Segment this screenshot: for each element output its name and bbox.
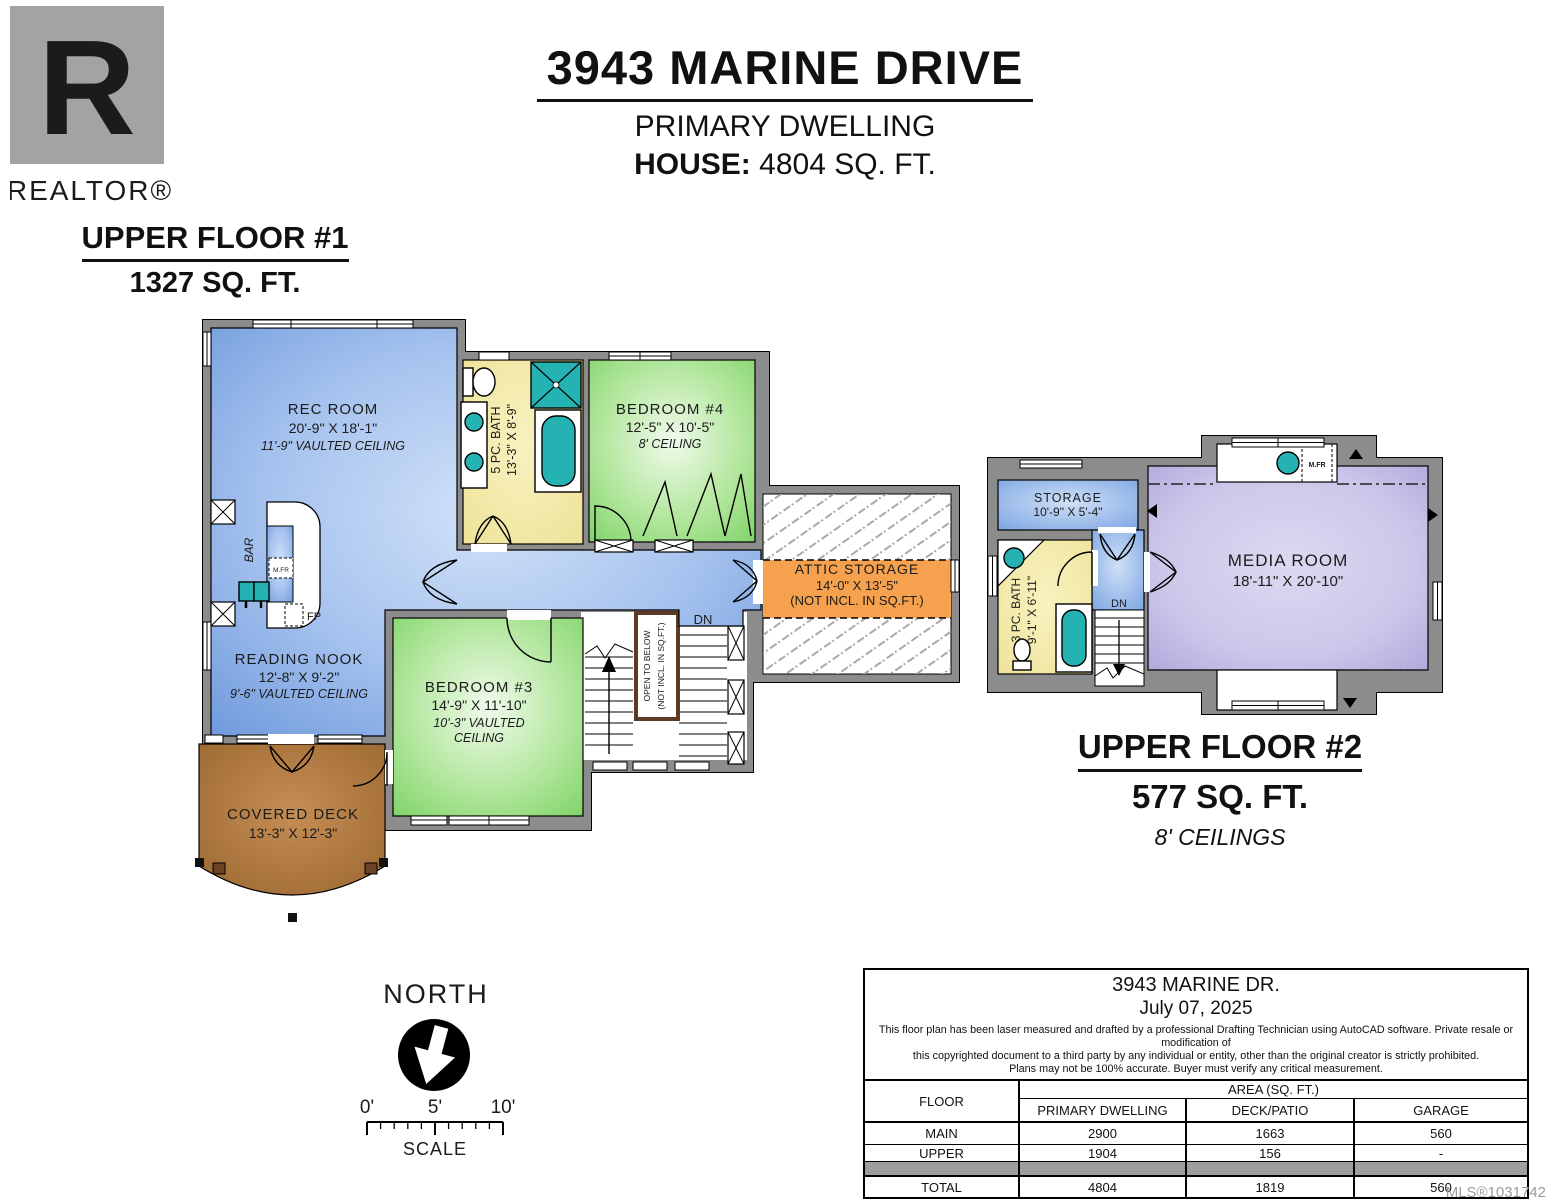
bedroom4-dims: 12'-5" X 10'-5" xyxy=(626,419,714,435)
bar-cabinet-icon xyxy=(254,582,269,601)
bedroom3-ceiling1: 10'-3" VAULTED xyxy=(433,716,524,730)
scale-label: SCALE xyxy=(403,1139,467,1159)
floor1-heading: UPPER FLOOR #1 1327 SQ. FT. xyxy=(40,220,390,300)
floorplan-upper1: OPEN TO BELOW (NOT INCL. IN SQ.FT.) xyxy=(195,310,965,930)
spacer-row xyxy=(865,1162,1020,1177)
floor2-title: UPPER FLOOR #2 xyxy=(1078,728,1362,772)
nook-dims: 12'-8" X 9'-2" xyxy=(259,669,340,685)
bedroom3-dims: 14'-9" X 11'-10" xyxy=(431,697,526,713)
area-table: 3943 MARINE DR. July 07, 2025 This floor… xyxy=(863,968,1529,1199)
col-header-garage: GARAGE xyxy=(1355,1099,1527,1123)
bedroom3-name: BEDROOM #3 xyxy=(425,679,533,696)
row-total-primary: 4804 xyxy=(1020,1177,1187,1197)
dn-label: DN xyxy=(694,612,713,627)
house-label: HOUSE: xyxy=(634,148,751,181)
row-total-deck: 1819 xyxy=(1187,1177,1355,1197)
bedroom3-ceiling2: CEILING xyxy=(454,731,504,745)
area-table-grid: FLOOR AREA (SQ. FT.) PRIMARY DWELLING DE… xyxy=(865,1081,1527,1197)
col-header-deck: DECK/PATIO xyxy=(1187,1099,1355,1123)
floor1-title: UPPER FLOOR #1 xyxy=(82,220,349,262)
scale-tick-0: 0' xyxy=(360,1097,374,1118)
bedroom4-ceiling: 8' CEILING xyxy=(639,437,702,451)
sink-icon xyxy=(465,453,483,471)
bath3-name: 3 PC. BATH xyxy=(1009,578,1023,642)
floor2-heading: UPPER FLOOR #2 577 SQ. FT. 8' CEILINGS xyxy=(1030,728,1410,851)
dn-label: DN xyxy=(1111,598,1127,610)
deck-dims: 13'-3" X 12'-3" xyxy=(249,825,337,841)
scale-tick-10: 10' xyxy=(491,1097,516,1118)
bath5-dims: 13'-3" X 8'-9" xyxy=(505,404,519,476)
north-label: NORTH xyxy=(383,979,489,1009)
col-header-area: AREA (SQ. FT.) xyxy=(1020,1081,1527,1099)
stairwell: OPEN TO BELOW (NOT INCL. IN SQ.FT.) xyxy=(581,612,747,764)
row-upper-primary: 1904 xyxy=(1020,1145,1187,1162)
rec-room-ceiling: 11'-9" VAULTED CEILING xyxy=(261,439,405,453)
attic-name: ATTIC STORAGE xyxy=(795,561,920,577)
floorplan-page: R REALTOR® 3943 MARINE DRIVE PRIMARY DWE… xyxy=(0,0,1553,1200)
row-total-floor: TOTAL xyxy=(865,1177,1020,1197)
rec-room-name: REC ROOM xyxy=(288,401,379,418)
north-arrow-icon xyxy=(398,1019,470,1091)
disclaimer-line: this copyrighted document to a third par… xyxy=(871,1050,1521,1063)
floorplan-upper2: M.FR xyxy=(980,430,1450,720)
realtor-logo-label: REALTOR® xyxy=(10,175,173,206)
scale-tick-5: 5' xyxy=(428,1097,442,1118)
floor2-ceilings: 8' CEILINGS xyxy=(1030,824,1410,851)
nook-ceiling: 9'-6" VAULTED CEILING xyxy=(230,687,368,701)
table-disclaimer: This floor plan has been laser measured … xyxy=(871,1024,1521,1076)
bathtub-icon xyxy=(535,410,581,492)
row-main-garage: 560 xyxy=(1355,1123,1527,1145)
spacer-row xyxy=(1187,1162,1355,1177)
house-area-line: HOUSE: 4804 SQ. FT. xyxy=(400,148,1170,182)
spacer-row xyxy=(1020,1162,1187,1177)
room-bedroom4 xyxy=(589,360,755,542)
floor1-area: 1327 SQ. FT. xyxy=(40,267,390,300)
media-dims: 18'-11" X 20'-10" xyxy=(1233,573,1343,590)
bathtub-icon xyxy=(1056,604,1092,672)
bedroom4-name: BEDROOM #4 xyxy=(616,401,724,418)
realtor-logo-letter: R xyxy=(38,12,136,163)
sink-icon xyxy=(1277,452,1299,474)
compass-and-scale: NORTH 0' 5' 10' SCALE xyxy=(330,975,540,1175)
attic-dims: 14'-0" X 13'-5" xyxy=(816,578,899,593)
scale-bar xyxy=(367,1122,503,1135)
dwelling-subtitle: PRIMARY DWELLING xyxy=(400,110,1170,144)
bar-label: BAR xyxy=(242,537,256,562)
mls-number: MLS®1031742 xyxy=(1340,1184,1546,1200)
storage-dims: 10'-9" X 5'-4" xyxy=(1033,505,1102,519)
stairwell xyxy=(1095,610,1144,686)
page-title-block: 3943 MARINE DRIVE PRIMARY DWELLING HOUSE… xyxy=(400,40,1170,182)
area-table-header: 3943 MARINE DR. July 07, 2025 This floor… xyxy=(865,970,1527,1081)
row-main-deck: 1663 xyxy=(1187,1123,1355,1145)
shower-icon xyxy=(531,362,581,408)
toilet-icon xyxy=(473,368,495,396)
realtor-logo: R REALTOR® xyxy=(10,4,190,214)
row-upper-deck: 156 xyxy=(1187,1145,1355,1162)
spacer-row xyxy=(1355,1162,1527,1177)
bath3-dims: 9'-1" X 6'-11" xyxy=(1025,576,1039,644)
attic-note: (NOT INCL. IN SQ.FT.) xyxy=(790,593,923,608)
open-to-below-note: (NOT INCL. IN SQ.FT.) xyxy=(656,622,666,709)
toilet-tank xyxy=(463,368,473,396)
table-address: 3943 MARINE DR. xyxy=(871,974,1521,997)
col-header-floor: FLOOR xyxy=(865,1081,1020,1123)
address-title: 3943 MARINE DRIVE xyxy=(537,40,1034,102)
house-value: 4804 SQ. FT. xyxy=(759,148,936,181)
row-upper-floor: UPPER xyxy=(865,1145,1020,1162)
floor2-area: 577 SQ. FT. xyxy=(1030,778,1410,816)
col-header-primary: PRIMARY DWELLING xyxy=(1020,1099,1187,1123)
sink-icon xyxy=(465,413,483,431)
storage-name: STORAGE xyxy=(1034,491,1102,505)
room-5pc-bath xyxy=(461,360,583,544)
row-upper-garage: - xyxy=(1355,1145,1527,1162)
row-main-primary: 2900 xyxy=(1020,1123,1187,1145)
mini-fridge-label: M.FR xyxy=(273,567,289,574)
open-to-below-label: OPEN TO BELOW xyxy=(642,630,652,701)
rec-room-dims: 20'-9" X 18'-1" xyxy=(289,420,377,436)
mini-fridge-label: M.FR xyxy=(1308,462,1325,469)
fireplace-label: FP xyxy=(307,611,321,623)
row-main-floor: MAIN xyxy=(865,1123,1020,1145)
bar-cabinet-icon xyxy=(239,582,254,601)
deck-name: COVERED DECK xyxy=(227,806,359,823)
table-date: July 07, 2025 xyxy=(871,998,1521,1020)
media-name: MEDIA ROOM xyxy=(1228,551,1349,570)
disclaimer-line: This floor plan has been laser measured … xyxy=(871,1024,1521,1050)
bath5-name: 5 PC. BATH xyxy=(489,406,503,473)
disclaimer-line: Plans may not be 100% accurate. Buyer mu… xyxy=(871,1063,1521,1076)
nook-name: READING NOOK xyxy=(235,651,364,668)
sink-icon xyxy=(1004,548,1024,568)
